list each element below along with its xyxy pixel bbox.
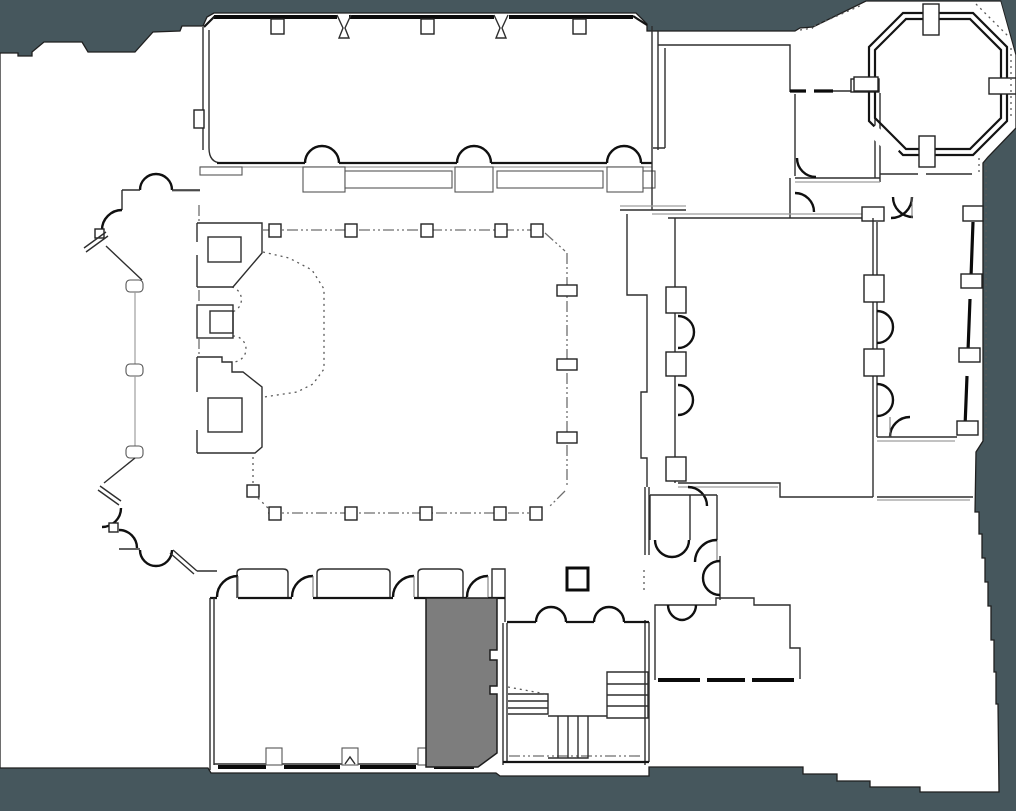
east-wing-pilaster bbox=[959, 348, 980, 362]
highlighted-room[interactable] bbox=[426, 598, 497, 767]
east-wing-pilaster bbox=[957, 421, 978, 435]
courtyard-pier bbox=[567, 568, 588, 590]
great-room-west-pilaster bbox=[666, 457, 686, 481]
column-marker bbox=[269, 507, 281, 520]
east-wing-pilaster bbox=[963, 206, 983, 221]
column-marker bbox=[557, 359, 577, 370]
column-marker bbox=[421, 224, 433, 237]
west-column bbox=[126, 364, 143, 376]
north-hall-pilaster bbox=[421, 19, 434, 34]
column-marker bbox=[531, 224, 543, 237]
north-gallery-bay bbox=[200, 167, 242, 175]
north-gallery-bay bbox=[607, 167, 643, 192]
east-wall-pilaster bbox=[864, 275, 884, 302]
north-gallery-bay bbox=[497, 171, 603, 188]
plan-silhouette bbox=[0, 1, 1016, 792]
floorplan-drawing bbox=[0, 0, 1016, 811]
column-marker bbox=[269, 224, 281, 237]
west-column bbox=[126, 280, 143, 292]
great-room-west-pilaster bbox=[666, 287, 686, 313]
column-marker bbox=[420, 507, 432, 520]
column-marker bbox=[495, 224, 507, 237]
north-gallery-bay bbox=[643, 171, 655, 188]
column-marker bbox=[345, 507, 357, 520]
column-marker bbox=[557, 432, 577, 443]
tower-pilaster bbox=[923, 4, 939, 35]
tower-pilaster bbox=[854, 77, 878, 91]
tower-pilaster bbox=[919, 136, 935, 167]
north-hall-pilaster bbox=[271, 19, 284, 34]
column-marker bbox=[345, 224, 357, 237]
buttress bbox=[266, 748, 282, 765]
west-column bbox=[126, 446, 143, 458]
north-gallery-bay bbox=[455, 167, 493, 192]
west-post bbox=[109, 523, 118, 532]
great-room-west-pilaster bbox=[666, 352, 686, 376]
tower-pilaster bbox=[989, 78, 1016, 94]
column-marker bbox=[530, 507, 542, 520]
east-wall-pilaster bbox=[864, 349, 884, 376]
north-gallery-bay bbox=[345, 171, 452, 188]
north-hall-west-pilaster bbox=[194, 110, 204, 128]
east-wing-pilaster bbox=[961, 274, 982, 288]
column-marker bbox=[494, 507, 506, 520]
floorplan-canvas bbox=[0, 0, 1016, 811]
north-gallery-bay bbox=[303, 167, 345, 192]
column-marker bbox=[557, 285, 577, 296]
north-hall-pilaster bbox=[573, 19, 586, 34]
column-marker bbox=[247, 485, 259, 497]
